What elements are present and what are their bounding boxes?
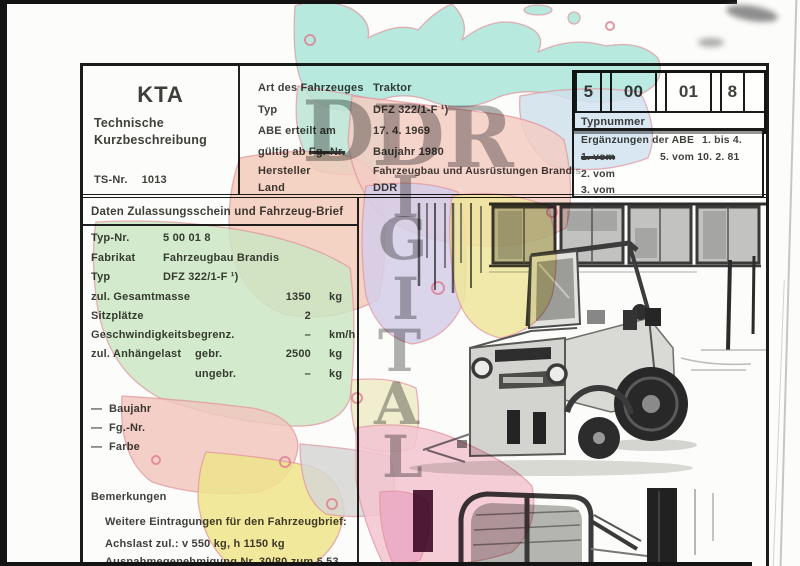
field-value: Baujahr 1980 bbox=[373, 146, 444, 158]
scan-smudge bbox=[725, 2, 779, 25]
document-header: KTA Technische Kurzbeschreibung TS-Nr.10… bbox=[83, 66, 766, 198]
abe-entry-5: 5. vom 10. 2. 81 bbox=[660, 152, 739, 163]
abe-range: 1. bis 4. bbox=[702, 135, 742, 146]
row-value: Fahrzeugbau Brandis bbox=[163, 252, 279, 264]
vehicle-photo-2-drawing bbox=[361, 485, 766, 566]
remarks-panel: Bemerkungen Weitere Eintragungen für den… bbox=[83, 485, 359, 566]
data-row: Fabrikat Fahrzeugbau Brandis bbox=[83, 252, 357, 268]
row-label: Geschwindigkeitsbegrenz. bbox=[91, 329, 235, 341]
doc-type-line2: Kurzbeschreibung bbox=[94, 133, 207, 147]
registration-data-panel: Daten Zulassungsschein und Fahrzeug-Brie… bbox=[83, 198, 359, 485]
dash-label: Baujahr bbox=[109, 403, 151, 415]
main-band: Daten Zulassungsschein und Fahrzeug-Brie… bbox=[83, 198, 766, 485]
dash: — bbox=[91, 403, 102, 415]
row-unit: kg bbox=[329, 348, 342, 360]
row-label: Fabrikat bbox=[91, 252, 135, 264]
scan-smudge bbox=[698, 38, 724, 47]
dash-row: — Baujahr bbox=[83, 403, 357, 419]
typnummer-cell: 01 bbox=[665, 73, 712, 111]
field-value: Fahrzeugbau und Ausrüstungen Brandis bbox=[373, 166, 581, 177]
row-label: zul. Gesamtmasse bbox=[91, 291, 190, 303]
typnummer-cell: 5 bbox=[575, 73, 602, 111]
dash: — bbox=[91, 441, 102, 453]
ts-number-row: TS-Nr.1013 bbox=[94, 174, 167, 186]
data-row: zul. Anhängelast gebr. 2500 kg bbox=[83, 348, 357, 364]
ts-label: TS-Nr. bbox=[94, 174, 128, 186]
field-label-struck: Fg.-Nr. bbox=[309, 146, 345, 158]
section-divider bbox=[83, 224, 357, 226]
row-number: – bbox=[243, 329, 311, 341]
row-number: 2500 bbox=[243, 348, 311, 360]
typnummer-cell: 8 bbox=[720, 73, 745, 111]
field-label: gültig ab Fg.-Nr. bbox=[258, 146, 345, 158]
row-sublabel: gebr. bbox=[195, 348, 222, 360]
row-value: DFZ 322/1-F ¹) bbox=[163, 271, 239, 283]
remarks-line: Weitere Eintragungen für den Fahrzeugbri… bbox=[105, 516, 347, 528]
dash-row: — Fg.-Nr. bbox=[83, 422, 357, 438]
field-label: ABE erteilt am bbox=[258, 125, 336, 137]
abe-entry-2: 2. vom bbox=[581, 169, 615, 180]
dash-label: Fg.-Nr. bbox=[109, 422, 145, 434]
vehicle-photo-drawing bbox=[361, 198, 766, 485]
remarks-title: Bemerkungen bbox=[91, 491, 167, 503]
row-unit: kg bbox=[329, 291, 342, 303]
data-row: Typ-Nr. 5 00 01 8 bbox=[83, 232, 357, 248]
data-row: ungebr. – kg bbox=[83, 368, 357, 384]
kta-document: KTA Technische Kurzbeschreibung TS-Nr.10… bbox=[80, 63, 769, 566]
field-label: Art des Fahrzeuges bbox=[258, 82, 364, 94]
field-label-prefix: gültig ab bbox=[258, 146, 306, 158]
scanned-document-page: KTA Technische Kurzbeschreibung TS-Nr.10… bbox=[0, 0, 800, 566]
data-row: zul. Gesamtmasse 1350 kg bbox=[83, 291, 357, 307]
remarks-band: Bemerkungen Weitere Eintragungen für den… bbox=[83, 485, 766, 566]
field-value: 17. 4. 1969 bbox=[373, 125, 430, 137]
abe-entry-3: 3. vom bbox=[581, 185, 615, 196]
row-label: Sitzplätze bbox=[91, 310, 144, 322]
data-row: Typ DFZ 322/1-F ¹) bbox=[83, 271, 357, 287]
field-label: Typ bbox=[258, 104, 277, 116]
scan-edge-top bbox=[0, 0, 737, 4]
row-label: zul. Anhängelast bbox=[91, 348, 181, 360]
section-title: Daten Zulassungsschein und Fahrzeug-Brie… bbox=[91, 206, 343, 218]
row-sublabel: ungebr. bbox=[195, 368, 236, 380]
abe-title: Ergänzungen der ABE bbox=[581, 135, 694, 146]
scan-edge-left bbox=[0, 0, 7, 566]
ts-value: 1013 bbox=[142, 174, 167, 186]
row-number: 2 bbox=[243, 310, 311, 322]
data-row: Sitzplätze 2 bbox=[83, 310, 357, 326]
doc-type-line1: Technische bbox=[94, 116, 164, 130]
field-value: Traktor bbox=[373, 82, 412, 94]
dash-row: — Farbe bbox=[83, 441, 357, 457]
field-label: Land bbox=[258, 182, 285, 194]
row-number: 1350 bbox=[243, 291, 311, 303]
org-title: KTA bbox=[83, 82, 238, 108]
header-left-cell: KTA Technische Kurzbeschreibung TS-Nr.10… bbox=[83, 66, 240, 194]
vehicle-photo-2 bbox=[361, 485, 766, 566]
typnummer-cells: 5 00 01 8 bbox=[575, 73, 764, 111]
scan-edge-bottom bbox=[0, 562, 752, 566]
dash-label: Farbe bbox=[109, 441, 140, 453]
row-label: Typ bbox=[91, 271, 110, 283]
row-number: – bbox=[243, 368, 311, 380]
row-label: Typ-Nr. bbox=[91, 232, 129, 244]
scan-streak bbox=[778, 0, 798, 566]
row-value: 5 00 01 8 bbox=[163, 232, 211, 244]
field-label: Hersteller bbox=[258, 165, 311, 177]
field-value: DDR bbox=[373, 182, 397, 194]
field-value: DFZ 322/1-F ¹) bbox=[373, 104, 449, 116]
abe-additions-box: Ergänzungen der ABE 1. bis 4. 1. vom 5. … bbox=[572, 128, 764, 198]
typnummer-box: 5 00 01 8 Typnummer bbox=[572, 70, 767, 134]
dash: — bbox=[91, 422, 102, 434]
abe-entry-1-struck: 1. vom bbox=[581, 152, 615, 163]
data-row: Geschwindigkeitsbegrenz. – km/h bbox=[83, 329, 357, 345]
row-unit: km/h bbox=[329, 329, 355, 341]
row-unit: kg bbox=[329, 368, 342, 380]
typnummer-cell: 00 bbox=[610, 73, 657, 111]
vehicle-photo bbox=[361, 198, 766, 485]
remarks-line: Achslast zul.: v 550 kg, h 1150 kg bbox=[105, 538, 285, 550]
